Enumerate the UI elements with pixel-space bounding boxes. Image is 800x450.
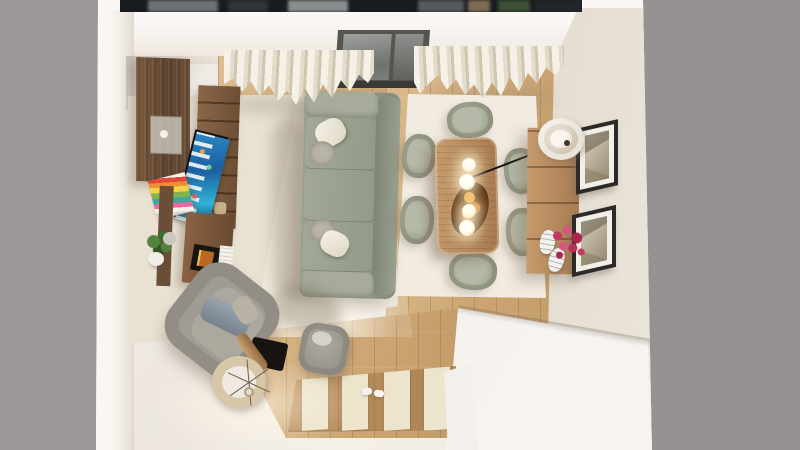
floor-lamp bbox=[212, 356, 266, 408]
room-shell bbox=[0, 0, 800, 450]
floor-lamp-shade-opening bbox=[222, 366, 256, 398]
flower-bouquet bbox=[550, 224, 588, 264]
sofa bbox=[299, 91, 400, 299]
rug-stripe bbox=[384, 363, 410, 431]
pendant-light bbox=[462, 204, 476, 218]
blurred-object bbox=[288, 0, 348, 12]
table-lamp bbox=[538, 118, 584, 160]
slippers bbox=[374, 389, 385, 397]
blurred-object bbox=[468, 0, 490, 12]
render-canvas bbox=[0, 0, 800, 450]
pendant-light bbox=[459, 220, 475, 236]
wardrobe-cabinet bbox=[136, 57, 190, 183]
blurred-object bbox=[358, 0, 408, 12]
gray-vase bbox=[163, 232, 176, 245]
lamp-bulb bbox=[244, 387, 254, 397]
shelf-item bbox=[214, 202, 226, 214]
pendant-light bbox=[459, 174, 475, 190]
plant-pot bbox=[148, 252, 164, 266]
blurred-object bbox=[418, 0, 464, 12]
lamp-switch bbox=[564, 140, 570, 146]
blurred-object bbox=[148, 0, 218, 12]
pendant-light bbox=[462, 158, 476, 172]
sofa-cushion bbox=[303, 169, 374, 223]
wardrobe-knob bbox=[160, 130, 168, 138]
blurred-object bbox=[228, 0, 268, 12]
pouf-highlight bbox=[311, 330, 333, 347]
blurred-object bbox=[535, 0, 582, 12]
blurred-object bbox=[498, 0, 530, 12]
outside-view bbox=[120, 0, 582, 12]
frame-art bbox=[585, 130, 609, 184]
